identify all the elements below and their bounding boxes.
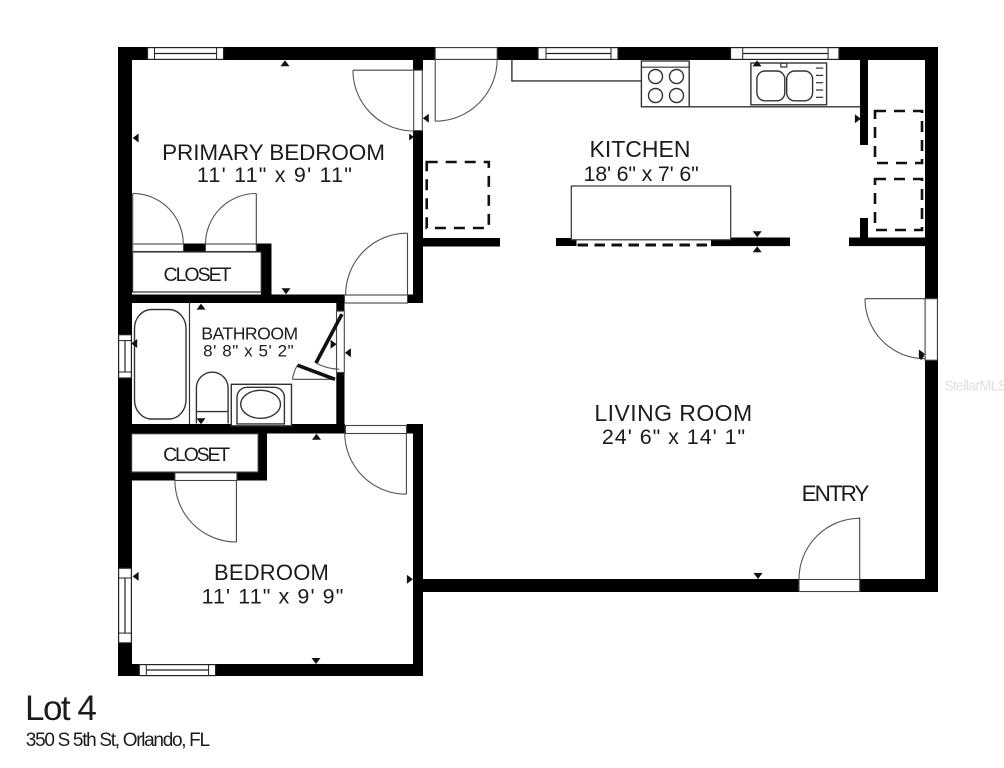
svg-text:11' 11" x 9' 9": 11' 11" x 9' 9" — [202, 585, 345, 609]
svg-text:LIVING ROOM: LIVING ROOM — [594, 400, 752, 426]
svg-text:PRIMARY BEDROOM: PRIMARY BEDROOM — [162, 140, 385, 165]
svg-text:18' 6" x 7' 6": 18' 6" x 7' 6" — [583, 162, 698, 186]
svg-text:350 S 5th St, Orlando, FL: 350 S 5th St, Orlando, FL — [26, 730, 210, 751]
svg-text:BEDROOM: BEDROOM — [214, 560, 329, 585]
svg-text:BATHROOM: BATHROOM — [201, 324, 297, 344]
svg-text:StellarMLS: StellarMLS — [944, 379, 1004, 395]
svg-text:24' 6" x 14' 1": 24' 6" x 14' 1" — [602, 425, 746, 449]
svg-text:KITCHEN: KITCHEN — [590, 136, 691, 162]
svg-text:8' 8" x 5' 2": 8' 8" x 5' 2" — [203, 342, 294, 361]
svg-text:11' 11" x 9' 11": 11' 11" x 9' 11" — [197, 163, 353, 187]
svg-text:ENTRY: ENTRY — [802, 481, 870, 506]
svg-text:CLOSET: CLOSET — [163, 444, 230, 466]
svg-text:Lot 4: Lot 4 — [25, 689, 96, 728]
svg-text:CLOSET: CLOSET — [163, 264, 231, 286]
